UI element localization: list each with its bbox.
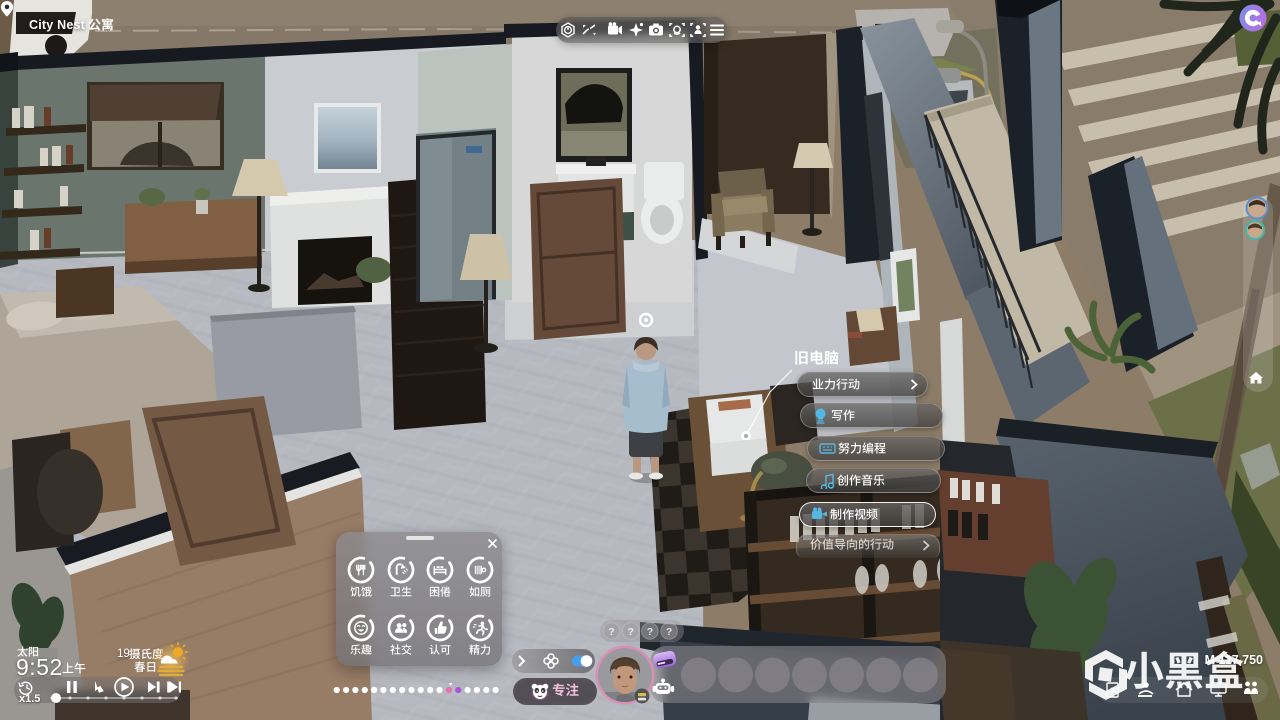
- svg-text:?: ?: [608, 626, 614, 638]
- svg-text:?: ?: [647, 626, 653, 638]
- svg-text:?: ?: [627, 626, 633, 638]
- svg-text:?: ?: [666, 626, 672, 638]
